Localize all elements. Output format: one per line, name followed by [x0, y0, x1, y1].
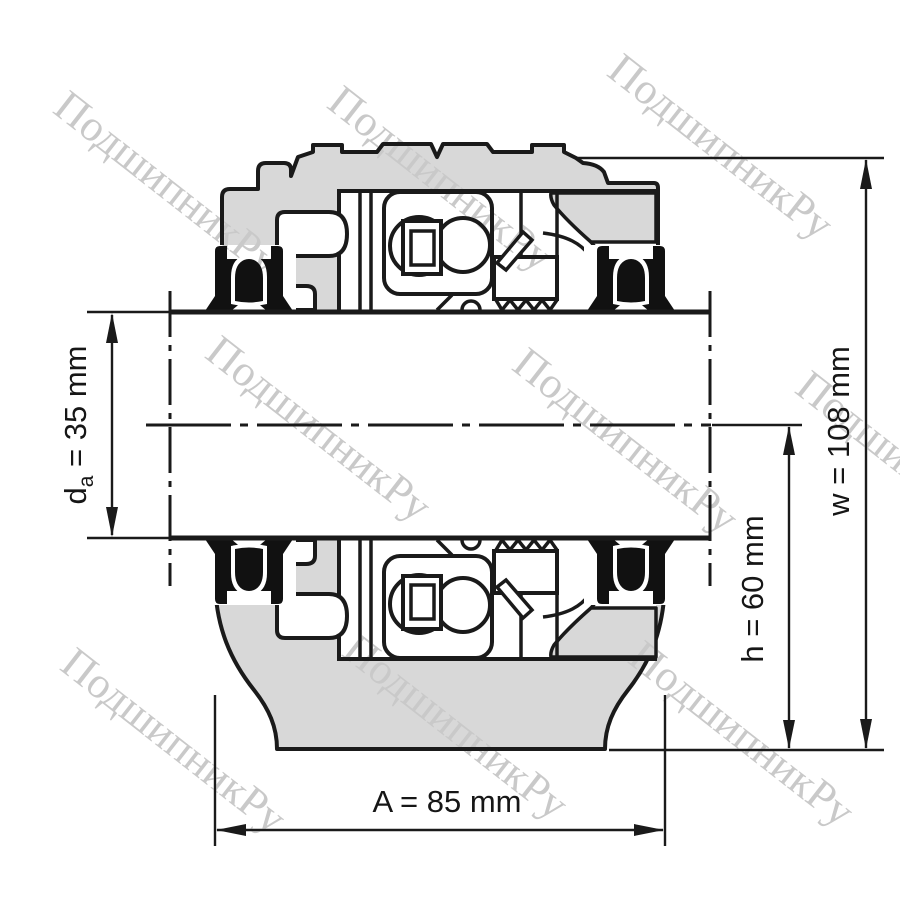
sleeve-notch — [462, 301, 480, 310]
seal-right — [584, 245, 678, 312]
bearing-housing-drawing: da = 35 mm h = 60 mm w = 108 mm A = 85 m… — [0, 0, 900, 900]
bearing-cage-inner — [411, 231, 434, 265]
dimension-h-label: h = 60 mm — [735, 515, 770, 662]
technical-drawing-canvas: da = 35 mm h = 60 mm w = 108 mm A = 85 m… — [0, 0, 900, 900]
